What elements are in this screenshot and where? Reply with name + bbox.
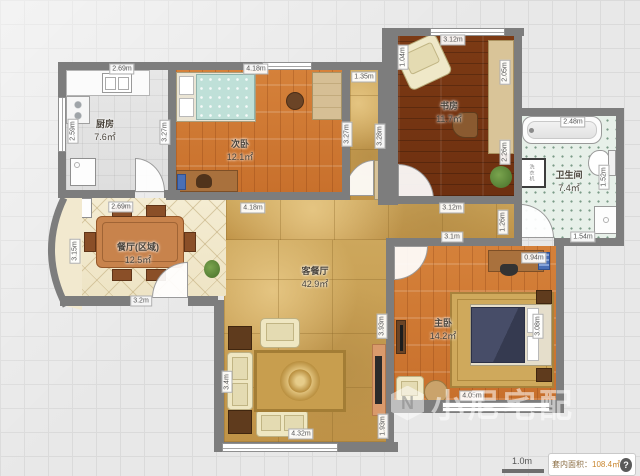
room-name: 餐厅(区域): [117, 240, 159, 253]
room-area: 7.6㎡: [94, 130, 116, 143]
room-area: 11.7㎡: [436, 112, 462, 125]
dimension-label: 1.52m: [599, 164, 610, 189]
dimension-label: 4.05m: [459, 391, 484, 402]
room-label-bathroom: 卫生间7.4㎡: [555, 168, 582, 194]
bedroom2-bed[interactable]: [176, 72, 256, 122]
scale-bar: [502, 469, 544, 473]
window[interactable]: [442, 402, 550, 412]
living-side-table[interactable]: [228, 326, 252, 350]
dimension-label: 3.08m: [533, 313, 544, 338]
kitchen-sink[interactable]: [102, 73, 132, 93]
room-area: 12.5㎡: [117, 253, 159, 266]
room-area: 12.1㎡: [227, 150, 254, 163]
dimension-label: 3.15m: [70, 238, 81, 263]
master-chair[interactable]: [500, 264, 518, 276]
dimension-label: 1.35m: [351, 72, 376, 83]
floorplan-canvas[interactable]: 洗衣机: [0, 0, 640, 476]
help-button[interactable]: ?: [620, 458, 632, 472]
bedroom2-stool[interactable]: [286, 92, 304, 110]
dimension-label: 1.26m: [498, 209, 509, 234]
wall: [166, 192, 350, 200]
room-name: 客餐厅: [301, 264, 328, 277]
kitchen-fridge[interactable]: [70, 158, 96, 186]
tv[interactable]: [375, 356, 382, 404]
bedroom2-chair[interactable]: [196, 174, 212, 188]
study-plant[interactable]: [490, 166, 512, 188]
dimension-label: 2.69m: [109, 64, 134, 75]
master-nightstand[interactable]: [536, 290, 552, 304]
dimension-label: 2.05m: [500, 59, 511, 84]
dimension-label: 3.2m: [130, 296, 152, 307]
window[interactable]: [222, 443, 338, 452]
dimension-label: 2.26m: [500, 139, 511, 164]
dimension-label: 3.28m: [375, 123, 386, 148]
bedroom2-bin[interactable]: [177, 174, 186, 190]
room-label-kitchen: 厨房7.6㎡: [94, 117, 116, 143]
corridor-floor[interactable]: [226, 200, 514, 240]
room-label-bedroom-2: 次卧12.1㎡: [227, 137, 254, 163]
living-side-table[interactable]: [228, 410, 252, 434]
dining-chair[interactable]: [146, 205, 166, 217]
master-armchair[interactable]: [396, 376, 424, 402]
dimension-label: 0.94m: [521, 253, 546, 264]
room-name: 卫生间: [555, 168, 582, 181]
dining-chair[interactable]: [84, 232, 96, 252]
wall: [556, 246, 564, 413]
dimension-label: 3.27m: [342, 121, 353, 146]
dining-chair[interactable]: [184, 232, 196, 252]
wall: [188, 296, 218, 306]
wall: [616, 108, 624, 246]
room-area: 14.2㎡: [430, 329, 457, 342]
room-label-dining-area: 餐厅(区域)12.5㎡: [117, 240, 159, 266]
room-name: 次卧: [227, 137, 254, 150]
dimension-label: 4.32m: [288, 429, 313, 440]
wall: [514, 108, 624, 116]
room-name: 书房: [436, 99, 462, 112]
room-name: 主卧: [430, 316, 457, 329]
wall: [58, 62, 390, 70]
dimension-label: 3.93m: [377, 313, 388, 338]
dining-plant[interactable]: [204, 260, 220, 278]
washing-machine[interactable]: 洗衣机: [518, 158, 546, 188]
window[interactable]: [262, 62, 312, 70]
room-name: 厨房: [94, 117, 116, 130]
master-nightstand[interactable]: [536, 368, 552, 382]
wall: [514, 108, 522, 246]
dimension-label: 2.59m: [68, 118, 79, 143]
washing-machine-label: 洗衣机: [529, 164, 536, 182]
dining-chair[interactable]: [112, 269, 132, 281]
dimension-label: 1.93m: [378, 413, 389, 438]
living-armchair[interactable]: [260, 318, 300, 348]
living-rug[interactable]: [254, 350, 346, 412]
dimension-label: 3.12m: [439, 203, 464, 214]
room-label-living-dining: 客餐厅42.9㎡: [301, 264, 328, 290]
dimension-label: 3.1m: [441, 232, 463, 243]
room-area: 42.9㎡: [301, 277, 328, 290]
room-label-master-bedroom: 主卧14.2㎡: [430, 316, 457, 342]
study-desk[interactable]: [488, 40, 514, 154]
dimension-label: 2.69m: [108, 202, 133, 213]
dimension-label: 1.04m: [398, 44, 409, 69]
shower-tray[interactable]: [594, 206, 618, 234]
dimension-label: 3.27m: [160, 119, 171, 144]
area-summary-box: 套内面积： 108.4㎡ ?: [548, 453, 636, 476]
dimension-label: 4.18m: [243, 64, 268, 75]
dimension-label: 4.18m: [240, 203, 265, 214]
dimension-label: 2.48m: [560, 117, 585, 128]
wall: [58, 190, 135, 198]
dimension-label: 3.4m: [222, 371, 233, 393]
room-label-study: 书房11.7㎡: [436, 99, 462, 125]
bedroom2-wardrobe[interactable]: [312, 72, 342, 120]
wall: [514, 28, 522, 116]
area-value: 108.4㎡: [592, 459, 620, 470]
room-area: 7.4㎡: [555, 181, 582, 194]
area-label: 套内面积：: [552, 459, 592, 470]
window[interactable]: [58, 97, 66, 152]
dimension-label: 1.54m: [570, 232, 595, 243]
scale-label: 1.0m: [500, 456, 544, 466]
master-tv-cabinet[interactable]: [396, 320, 406, 354]
dimension-label: 3.12m: [440, 35, 465, 46]
